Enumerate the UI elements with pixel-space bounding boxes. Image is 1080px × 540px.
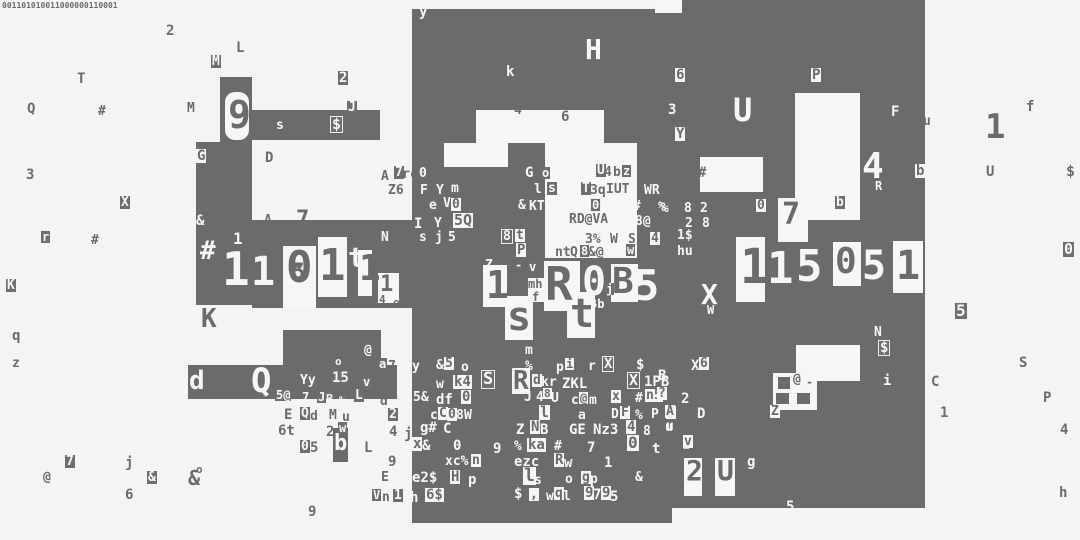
noise-glyph: s xyxy=(276,119,284,132)
noise-glyph: u xyxy=(665,421,673,434)
noise-glyph: b xyxy=(562,184,570,197)
noise-glyph: 5Q xyxy=(453,213,473,228)
noise-glyph: 0 xyxy=(451,198,461,211)
noise-glyph: 1 xyxy=(222,246,250,292)
noise-glyph: N xyxy=(874,326,882,339)
noise-glyph: $ xyxy=(636,358,644,372)
noise-glyph: K xyxy=(6,279,16,292)
noise-glyph: v xyxy=(528,261,537,273)
noise-glyph: l xyxy=(563,490,571,503)
noise-glyph: 1 xyxy=(940,406,948,420)
noise-glyph: a xyxy=(578,409,586,422)
noise-glyph: d xyxy=(380,395,388,408)
noise-glyph: % xyxy=(514,440,522,453)
noise-glyph: ZKL xyxy=(562,377,587,391)
noise-glyph: q xyxy=(12,329,20,343)
noise-glyph: z xyxy=(622,165,631,177)
noise-glyph: S xyxy=(481,370,495,389)
noise-glyph: e xyxy=(428,199,438,212)
noise-glyph: 5 xyxy=(796,245,823,289)
noise-glyph: L xyxy=(364,441,372,455)
noise-glyph: # xyxy=(98,105,106,118)
noise-glyph: @ xyxy=(364,344,372,357)
noise-glyph: G xyxy=(196,149,206,163)
noise-glyph: 7 xyxy=(782,200,800,230)
checker-square xyxy=(778,377,790,389)
noise-glyph: mh xyxy=(528,278,542,290)
noise-glyph: 5 xyxy=(448,231,456,244)
noise-glyph: 4 xyxy=(1060,423,1068,437)
noise-glyph: 1 xyxy=(740,243,769,291)
noise-glyph: & xyxy=(371,232,379,245)
noise-glyph: i xyxy=(883,374,891,388)
noise-glyph: 7 xyxy=(302,391,309,403)
noise-cutout xyxy=(655,0,682,13)
noise-glyph: & xyxy=(422,439,430,453)
noise-glyph: & xyxy=(635,471,643,484)
noise-glyph: B xyxy=(540,423,548,437)
noise-glyph: k xyxy=(506,65,514,79)
noise-glyph: o xyxy=(461,361,469,374)
noise-glyph: J xyxy=(524,391,532,404)
glitch-canvas: 001101010011000000110001 2LMT2Q#MJs$GD3X… xyxy=(0,0,1080,540)
noise-glyph: $ xyxy=(1066,164,1075,179)
noise-glyph: 0 xyxy=(300,440,310,453)
noise-glyph: 1 xyxy=(359,251,381,287)
noise-glyph: s xyxy=(547,182,557,195)
noise-glyph: X xyxy=(120,196,130,209)
noise-glyph: , xyxy=(529,488,539,501)
noise-glyph: u xyxy=(923,115,931,128)
noise-glyph: N xyxy=(380,231,390,244)
noise-glyph: 4 xyxy=(650,232,660,245)
noise-glyph: E xyxy=(381,471,389,484)
binary-header-text: 001101010011000000110001 xyxy=(2,1,118,10)
noise-glyph: # xyxy=(635,392,643,405)
noise-glyph: s xyxy=(534,474,542,487)
noise-glyph: P xyxy=(516,243,526,257)
noise-glyph: X xyxy=(602,356,614,372)
noise-glyph: M xyxy=(329,409,337,422)
noise-glyph: 2 xyxy=(166,24,174,38)
noise-glyph: w xyxy=(436,378,444,391)
noise-glyph: z xyxy=(12,357,20,370)
noise-glyph: JuM xyxy=(387,247,409,259)
noise-glyph: H xyxy=(450,470,460,484)
noise-glyph: Z xyxy=(516,423,524,437)
noise-glyph: l xyxy=(534,183,542,196)
noise-glyph: 6 xyxy=(561,110,569,124)
noise-glyph: 0 xyxy=(453,439,461,453)
noise-glyph: R xyxy=(875,180,882,192)
noise-glyph: U xyxy=(551,392,559,405)
noise-glyph: v xyxy=(362,376,371,388)
noise-glyph: 8@ xyxy=(635,215,651,228)
noise-glyph: 1 xyxy=(393,489,403,502)
noise-glyph: J xyxy=(347,101,357,114)
noise-glyph: g# xyxy=(420,421,437,435)
noise-glyph: W xyxy=(464,409,472,422)
noise-glyph: F xyxy=(420,184,428,197)
noise-glyph: GE xyxy=(569,423,586,437)
noise-glyph: o xyxy=(541,167,550,179)
noise-glyph: W xyxy=(610,233,618,246)
noise-glyph: X xyxy=(627,372,640,389)
noise-glyph: & xyxy=(196,214,204,228)
noise-glyph: w xyxy=(564,456,572,470)
noise-glyph: 5 xyxy=(310,441,318,455)
noise-glyph: b xyxy=(334,433,347,455)
noise-glyph: b xyxy=(835,196,845,209)
noise-glyph: F xyxy=(891,105,899,119)
noise-glyph: 3 xyxy=(26,168,34,182)
noise-glyph: C xyxy=(443,422,451,436)
noise-glyph: h xyxy=(410,491,418,505)
noise-glyph: 9 xyxy=(228,96,251,134)
noise-glyph: o xyxy=(565,473,573,486)
noise-glyph: $ xyxy=(878,340,890,356)
noise-glyph: 8 xyxy=(684,202,692,215)
noise-glyph: 1 xyxy=(319,244,346,288)
noise-glyph: 6$ xyxy=(425,488,444,502)
noise-glyph: d xyxy=(189,368,205,394)
noise-glyph: 2 xyxy=(388,408,398,421)
noise-glyph: 4 xyxy=(626,420,636,434)
noise-glyph: 1 xyxy=(486,266,509,304)
noise-glyph: V xyxy=(443,197,451,210)
noise-glyph: IUT xyxy=(606,183,629,196)
noise-glyph: l xyxy=(539,405,550,420)
noise-glyph: 4 xyxy=(389,425,397,439)
noise-glyph: n xyxy=(471,454,481,467)
noise-glyph: 1 xyxy=(896,246,920,286)
noise-glyph: 1 xyxy=(604,456,612,470)
noise-glyph: U xyxy=(733,94,752,126)
noise-glyph: 7 xyxy=(587,441,595,455)
noise-glyph: 0 xyxy=(627,435,639,451)
noise-glyph: f xyxy=(532,291,539,303)
noise-glyph: T xyxy=(77,72,85,86)
noise-glyph: @ xyxy=(43,471,51,484)
noise-glyph: 0 xyxy=(590,198,601,212)
noise-glyph: o xyxy=(335,356,342,367)
noise-glyph: - xyxy=(806,376,813,388)
noise-glyph: 8 xyxy=(702,217,710,230)
noise-glyph: hu xyxy=(677,245,693,258)
noise-glyph: 0 xyxy=(1063,242,1074,257)
noise-glyph: & xyxy=(147,471,157,484)
noise-glyph: k4 xyxy=(453,375,472,389)
noise-glyph: ka xyxy=(527,438,546,452)
noise-glyph: t xyxy=(652,442,660,456)
noise-glyph: F xyxy=(620,406,630,419)
noise-glyph: j xyxy=(435,231,443,244)
noise-glyph: D xyxy=(265,151,273,165)
noise-glyph: & xyxy=(188,468,200,488)
noise-glyph: 9 xyxy=(388,455,396,469)
noise-glyph: d xyxy=(310,410,318,423)
noise-glyph: 5& xyxy=(413,391,429,404)
noise-cutout xyxy=(444,143,508,167)
noise-glyph: 5 xyxy=(444,357,454,370)
noise-glyph: b xyxy=(915,164,925,178)
noise-glyph: 6t xyxy=(278,424,295,438)
noise-glyph: m xyxy=(589,394,597,407)
noise-glyph: M xyxy=(211,55,221,68)
noise-glyph: 9 xyxy=(493,442,501,456)
noise-glyph: i xyxy=(565,358,574,370)
checker-square xyxy=(797,393,810,404)
noise-glyph: 3 xyxy=(668,103,676,117)
noise-glyph: 1 xyxy=(251,252,275,292)
noise-glyph: xc% xyxy=(445,455,468,468)
noise-glyph: 6 xyxy=(699,357,709,370)
noise-glyph: c xyxy=(571,394,579,407)
noise-glyph: Y xyxy=(434,217,442,230)
noise-glyph: 3 xyxy=(552,200,560,213)
noise-glyph: D xyxy=(611,408,619,421)
noise-glyph: 0 xyxy=(835,244,857,280)
noise-glyph: R xyxy=(554,453,564,467)
noise-glyph: 1 xyxy=(380,274,393,296)
noise-glyph: Q xyxy=(251,364,271,398)
noise-glyph: U xyxy=(717,457,734,485)
noise-glyph: P xyxy=(651,408,659,421)
noise-glyph: y xyxy=(419,5,427,19)
noise-glyph: Yy xyxy=(299,374,317,387)
noise-glyph: # xyxy=(91,234,99,247)
noise-glyph: # xyxy=(698,166,706,180)
noise-glyph: a xyxy=(378,358,387,370)
noise-glyph: 5 xyxy=(634,265,659,307)
noise-glyph: H xyxy=(585,36,602,64)
noise-glyph: t xyxy=(515,229,525,242)
noise-glyph: @ xyxy=(793,373,801,386)
noise-glyph: % xyxy=(339,396,345,406)
noise-glyph: 0 xyxy=(418,167,428,180)
noise-glyph: A xyxy=(665,405,675,418)
noise-glyph: 1 xyxy=(985,110,1005,144)
noise-glyph: & xyxy=(436,359,444,372)
noise-glyph: B xyxy=(326,393,333,405)
noise-glyph: WR xyxy=(644,184,660,197)
noise-glyph: s xyxy=(507,297,531,337)
noise-glyph: e2$ xyxy=(412,471,437,485)
noise-cutout xyxy=(476,110,604,143)
noise-glyph: Z6 xyxy=(388,184,404,197)
noise-glyph: W xyxy=(707,304,714,316)
noise-cutout xyxy=(700,157,763,192)
noise-glyph: h xyxy=(1059,486,1067,500)
noise-glyph: U xyxy=(986,165,994,179)
noise-glyph: 5 xyxy=(862,246,886,286)
noise-glyph: A xyxy=(264,214,272,227)
noise-glyph: B xyxy=(612,264,634,300)
noise-glyph: R xyxy=(545,261,573,307)
noise-glyph: 6 xyxy=(675,68,685,82)
noise-glyph: I xyxy=(414,217,422,231)
noise-glyph: P xyxy=(811,68,821,82)
noise-glyph: M xyxy=(187,102,195,115)
noise-glyph: N xyxy=(530,420,540,434)
noise-glyph: 4 xyxy=(604,166,612,179)
noise-glyph: 4 xyxy=(514,104,522,117)
noise-glyph: n xyxy=(382,491,390,504)
noise-glyph: 7 xyxy=(388,360,396,373)
noise-glyph: Nz3 xyxy=(593,423,618,437)
noise-glyph: L xyxy=(354,389,364,402)
noise-glyph: F# xyxy=(625,200,641,213)
noise-glyph: 0 xyxy=(756,199,766,212)
noise-glyph: 0 xyxy=(461,390,471,404)
noise-glyph: B xyxy=(658,369,666,383)
noise-glyph: 8 xyxy=(501,229,513,244)
noise-glyph: 7 xyxy=(296,209,309,231)
noise-glyph: C xyxy=(931,375,939,389)
noise-glyph: j xyxy=(125,456,133,470)
noise-glyph: f xyxy=(1026,100,1034,114)
noise-glyph: KTi xyxy=(529,200,552,213)
noise-glyph: RD@VA xyxy=(569,213,608,226)
noise-glyph: y xyxy=(412,360,420,373)
noise-glyph: 5 xyxy=(292,262,305,284)
noise-glyph: 5@ xyxy=(275,389,291,401)
noise-glyph: 2 xyxy=(681,392,689,406)
noise-glyph: r xyxy=(41,231,50,243)
noise-glyph: % xyxy=(661,202,669,215)
noise-glyph: 9 xyxy=(308,505,316,519)
noise-glyph: 3q xyxy=(590,184,606,197)
noise-glyph: m xyxy=(450,182,460,195)
noise-glyph: p xyxy=(556,361,564,374)
noise-glyph: b xyxy=(613,166,621,179)
noise-glyph: 6 xyxy=(125,488,133,502)
noise-glyph: ? xyxy=(657,387,667,400)
noise-glyph: 5 xyxy=(954,302,968,320)
checker-square xyxy=(776,393,789,404)
noise-glyph: $ xyxy=(330,116,343,133)
noise-glyph: m xyxy=(525,344,533,357)
noise-glyph: 1$ xyxy=(677,229,693,242)
noise-glyph: $ xyxy=(514,487,522,501)
noise-glyph: v xyxy=(683,435,693,448)
noise-glyph: w xyxy=(626,244,635,256)
noise-glyph: Y xyxy=(675,127,685,141)
noise-glyph: g xyxy=(747,455,755,469)
noise-glyph: Q xyxy=(27,102,35,116)
noise-glyph: 8 xyxy=(456,409,464,422)
noise-glyph: 5 xyxy=(786,500,794,514)
noise-glyph: J xyxy=(317,391,326,403)
noise-glyph: @ xyxy=(579,392,588,404)
noise-glyph: L xyxy=(236,41,244,55)
noise-glyph: 7 xyxy=(65,455,75,468)
noise-glyph: K xyxy=(201,306,217,332)
noise-glyph: 2 xyxy=(338,71,348,85)
noise-glyph: Q xyxy=(300,407,310,420)
noise-glyph: x xyxy=(611,390,621,403)
noise-glyph: w xyxy=(306,330,314,343)
noise-glyph: 0 xyxy=(582,262,606,302)
noise-glyph: p xyxy=(468,473,476,487)
noise-glyph: df xyxy=(436,393,453,407)
noise-glyph: # xyxy=(200,238,216,264)
noise-glyph: r xyxy=(588,360,596,373)
noise-glyph: 5 xyxy=(610,490,618,504)
noise-glyph: A xyxy=(381,170,389,183)
noise-glyph: 2 xyxy=(700,202,708,215)
noise-glyph: G xyxy=(525,166,533,180)
noise-glyph: & xyxy=(518,199,526,212)
noise-glyph: P xyxy=(1043,391,1051,405)
noise-glyph: s xyxy=(419,231,427,244)
noise-glyph: o xyxy=(393,297,400,308)
noise-glyph: 2 xyxy=(686,457,703,485)
noise-glyph: V xyxy=(372,489,381,501)
noise-glyph: &@ xyxy=(588,246,604,259)
noise-glyph: x xyxy=(412,437,422,451)
noise-glyph: rc xyxy=(402,168,418,181)
noise-glyph: E xyxy=(284,408,292,422)
noise-glyph: S xyxy=(1019,356,1027,370)
noise-glyph: D xyxy=(697,407,705,421)
noise-glyph: 15 xyxy=(331,371,350,385)
noise-glyph: w xyxy=(546,490,554,503)
noise-glyph: 8 xyxy=(643,425,651,438)
noise-glyph: - xyxy=(515,259,522,271)
noise-glyph: Z xyxy=(770,405,780,418)
noise-glyph: 1 xyxy=(767,247,794,291)
